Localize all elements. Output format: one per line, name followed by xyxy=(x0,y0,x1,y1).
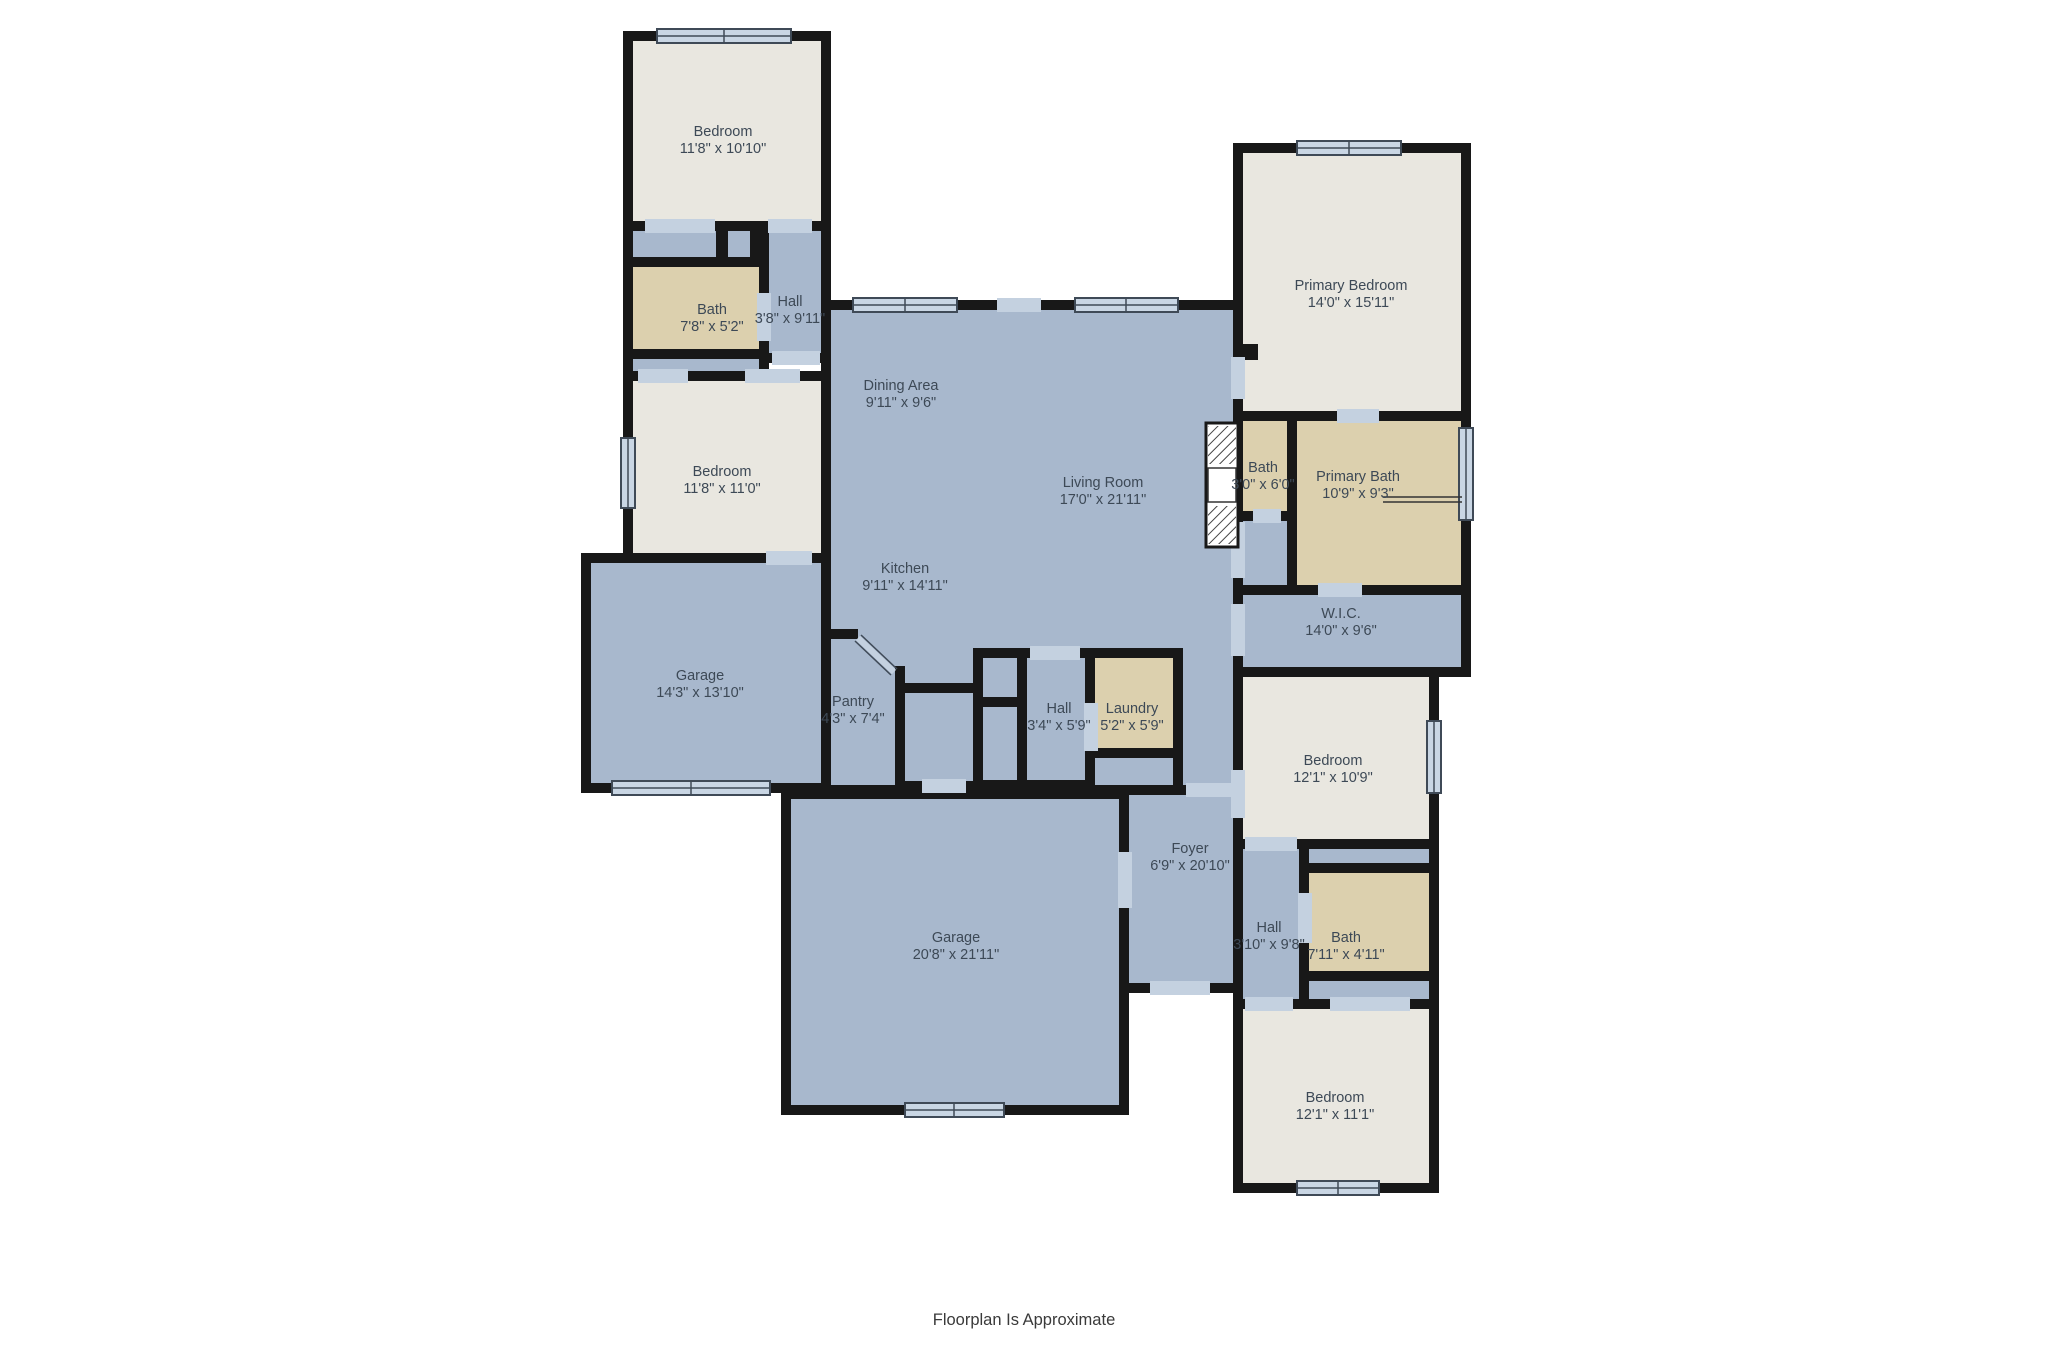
door-gap xyxy=(1231,357,1245,399)
door-gap xyxy=(772,351,820,365)
corridor-a-floor xyxy=(1238,516,1292,590)
door-gap xyxy=(1298,893,1312,943)
room-primary-bedroom-label: Primary Bedroom14'0" x 15'11" xyxy=(1295,278,1408,311)
door-gap xyxy=(768,219,812,233)
front-door-gap xyxy=(1150,981,1210,995)
closet-divider-wall xyxy=(716,221,728,257)
room-bedroom-2-label: Bedroom11'8" x 11'0" xyxy=(683,464,760,497)
door-gap xyxy=(1030,646,1080,660)
closet-floor xyxy=(900,688,978,786)
door-gap xyxy=(1186,783,1232,797)
door-gap xyxy=(1245,997,1293,1011)
closet-divider-wall xyxy=(750,221,762,257)
room-bath-1-floor xyxy=(628,262,764,354)
door-gap xyxy=(1231,604,1245,656)
door-gap xyxy=(1337,409,1379,423)
room-hall-1-floor xyxy=(764,226,826,358)
room-primary-bath-label: Primary Bath10'9" x 9'3" xyxy=(1316,469,1400,502)
door-gap xyxy=(1231,770,1245,818)
garage-door xyxy=(612,781,770,795)
garage-door xyxy=(905,1103,1004,1117)
window xyxy=(853,298,957,312)
window xyxy=(1297,1181,1379,1195)
footer-note: Floorplan Is Approximate xyxy=(933,1311,1116,1329)
hall-cell-divider-wall xyxy=(978,697,1022,707)
window xyxy=(1297,141,1401,155)
room-foyer-floor xyxy=(1124,790,1238,988)
door-gap xyxy=(997,298,1041,312)
door-gap xyxy=(745,369,800,383)
room-bedroom-3-label: Bedroom12'1" x 10'9" xyxy=(1293,753,1373,786)
door-gap xyxy=(645,219,715,233)
door-gap xyxy=(1318,583,1362,597)
door-gap xyxy=(1245,837,1297,851)
room-living-label: Living Room17'0" x 21'11" xyxy=(1060,475,1147,508)
window xyxy=(621,438,635,508)
room-bedroom-4-label: Bedroom12'1" x 11'1" xyxy=(1296,1090,1374,1123)
door-gap xyxy=(1118,852,1132,908)
window xyxy=(1075,298,1178,312)
door-gap xyxy=(1253,509,1281,523)
window xyxy=(657,29,791,43)
room-laundry-label: Laundry5'2" x 5'9" xyxy=(1100,701,1163,734)
door-gap xyxy=(922,779,966,793)
door-gap xyxy=(1330,997,1410,1011)
room-dining-label: Dining Area9'11" x 9'6" xyxy=(864,378,940,411)
window xyxy=(1459,428,1473,520)
hall-cells-floor xyxy=(978,653,1022,785)
window xyxy=(1427,721,1441,793)
floorplan-page: Bedroom11'8" x 10'10" Bath7'8" x 5'2" Ha… xyxy=(0,0,2048,1365)
door-gap xyxy=(638,369,688,383)
door-gap xyxy=(766,551,812,565)
room-primary-bath-floor xyxy=(1292,416,1466,590)
floorplan-svg: Bedroom11'8" x 10'10" Bath7'8" x 5'2" Ha… xyxy=(0,0,2048,1365)
